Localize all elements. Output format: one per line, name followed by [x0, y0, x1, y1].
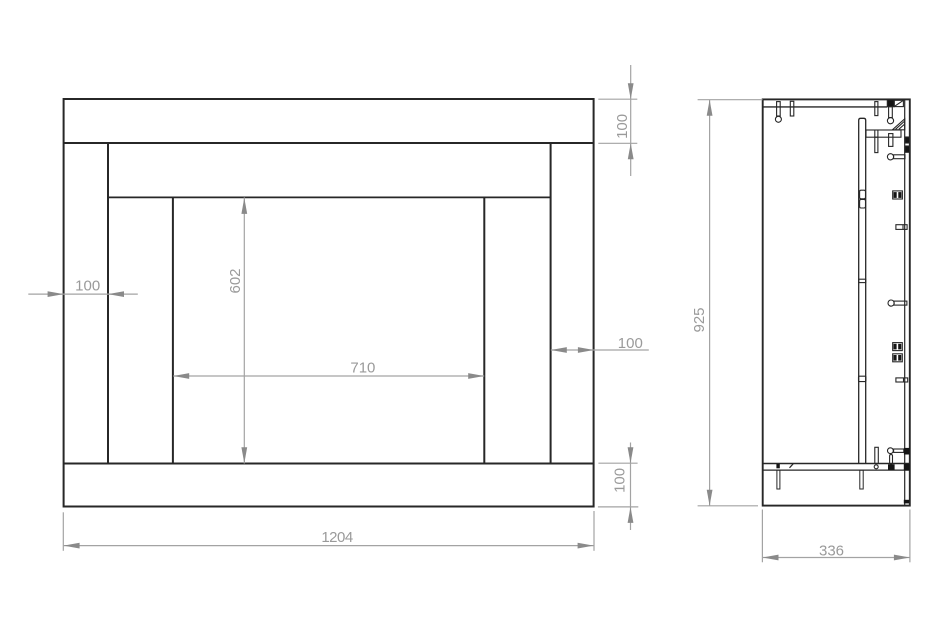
svg-text:100: 100: [618, 335, 643, 352]
svg-text:710: 710: [350, 360, 375, 377]
svg-text:602: 602: [227, 268, 244, 293]
svg-text:336: 336: [819, 542, 844, 559]
svg-text:925: 925: [691, 307, 708, 332]
svg-text:100: 100: [75, 278, 100, 295]
svg-text:100: 100: [612, 468, 629, 493]
svg-text:1204: 1204: [321, 529, 353, 546]
svg-text:100: 100: [614, 114, 631, 139]
